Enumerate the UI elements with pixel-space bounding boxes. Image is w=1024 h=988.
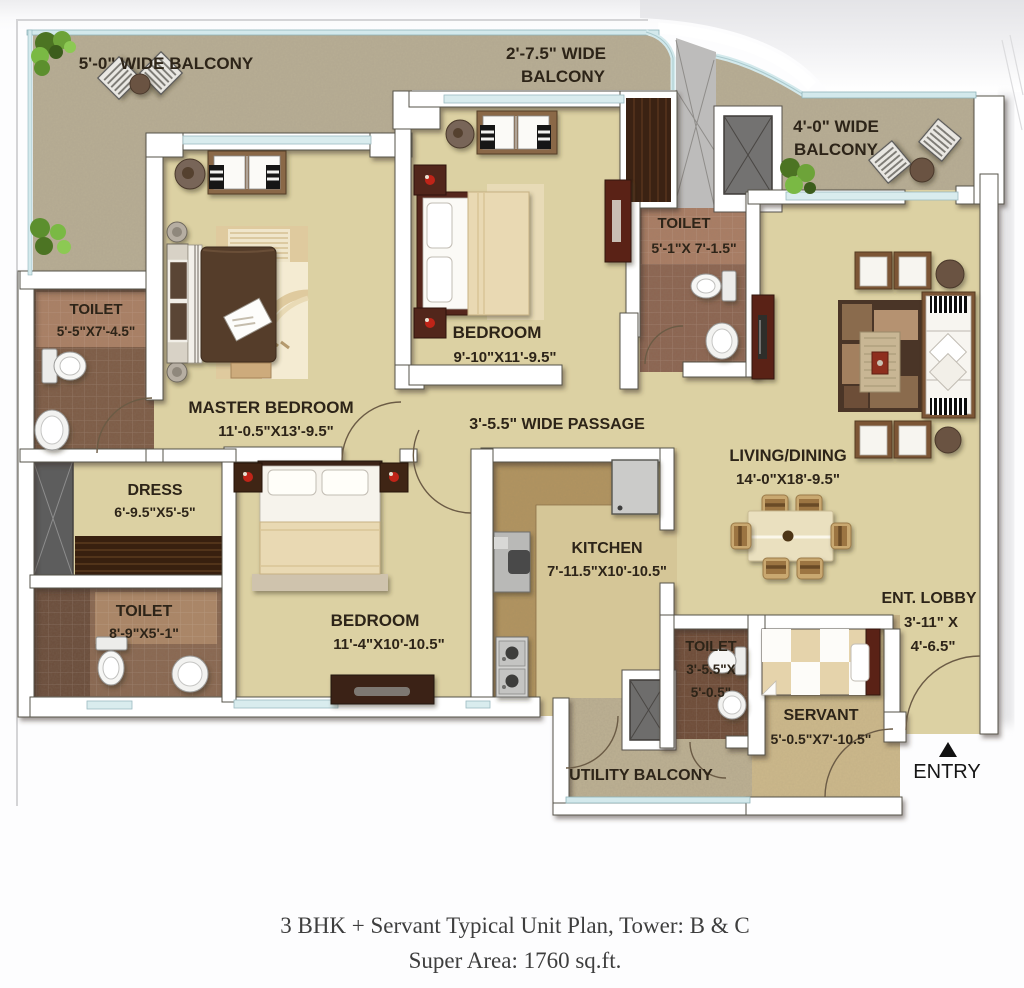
svg-text:Super Area: 1760 sq.ft.: Super Area: 1760 sq.ft.: [409, 948, 622, 973]
svg-text:MASTER BEDROOM: MASTER BEDROOM: [188, 398, 353, 417]
svg-text:9'-10"X11'-9.5": 9'-10"X11'-9.5": [453, 349, 556, 366]
svg-text:TOILET: TOILET: [685, 639, 736, 655]
svg-text:11'-4"X10'-10.5": 11'-4"X10'-10.5": [333, 636, 444, 653]
svg-text:BALCONY: BALCONY: [794, 140, 879, 159]
svg-text:UTILITY BALCONY: UTILITY BALCONY: [569, 767, 713, 784]
svg-text:BEDROOM: BEDROOM: [331, 611, 420, 630]
svg-text:BEDROOM: BEDROOM: [453, 323, 542, 342]
svg-text:5'-0.5"X7'-10.5": 5'-0.5"X7'-10.5": [771, 731, 872, 747]
svg-text:5'-1"X 7'-1.5": 5'-1"X 7'-1.5": [651, 240, 736, 256]
svg-text:ENTRY: ENTRY: [913, 761, 980, 783]
svg-text:6'-9.5"X5'-5": 6'-9.5"X5'-5": [114, 504, 195, 520]
svg-text:TOILET: TOILET: [116, 603, 173, 620]
svg-text:7'-11.5"X10'-10.5": 7'-11.5"X10'-10.5": [547, 564, 667, 580]
svg-text:4'-6.5": 4'-6.5": [911, 638, 956, 655]
svg-text:TOILET: TOILET: [657, 215, 710, 232]
svg-text:3'-5.5"X: 3'-5.5"X: [686, 662, 735, 677]
svg-text:3'-5.5" WIDE PASSAGE: 3'-5.5" WIDE PASSAGE: [469, 416, 645, 433]
svg-text:3 BHK + Servant Typical Unit P: 3 BHK + Servant Typical Unit Plan, Tower…: [280, 913, 750, 938]
svg-text:8'-9"X5'-1": 8'-9"X5'-1": [109, 625, 179, 641]
svg-text:DRESS: DRESS: [127, 482, 182, 499]
svg-text:5'-5"X7'-4.5": 5'-5"X7'-4.5": [57, 324, 136, 339]
svg-text:SERVANT: SERVANT: [784, 707, 859, 724]
svg-text:KITCHEN: KITCHEN: [571, 540, 642, 557]
svg-text:14'-0"X18'-9.5": 14'-0"X18'-9.5": [736, 471, 840, 488]
svg-text:2'-7.5" WIDE: 2'-7.5" WIDE: [506, 44, 606, 63]
svg-text:5'-0" WIDE BALCONY: 5'-0" WIDE BALCONY: [79, 54, 254, 73]
svg-text:11'-0.5"X13'-9.5": 11'-0.5"X13'-9.5": [218, 423, 334, 440]
svg-text:BALCONY: BALCONY: [521, 67, 606, 86]
svg-text:5'-0.5": 5'-0.5": [691, 685, 731, 700]
svg-text:TOILET: TOILET: [69, 301, 122, 318]
svg-text:4'-0" WIDE: 4'-0" WIDE: [793, 117, 879, 136]
svg-text:LIVING/DINING: LIVING/DINING: [729, 447, 846, 465]
svg-text:3'-11" X: 3'-11" X: [904, 614, 958, 631]
svg-text:ENT. LOBBY: ENT. LOBBY: [881, 590, 976, 607]
